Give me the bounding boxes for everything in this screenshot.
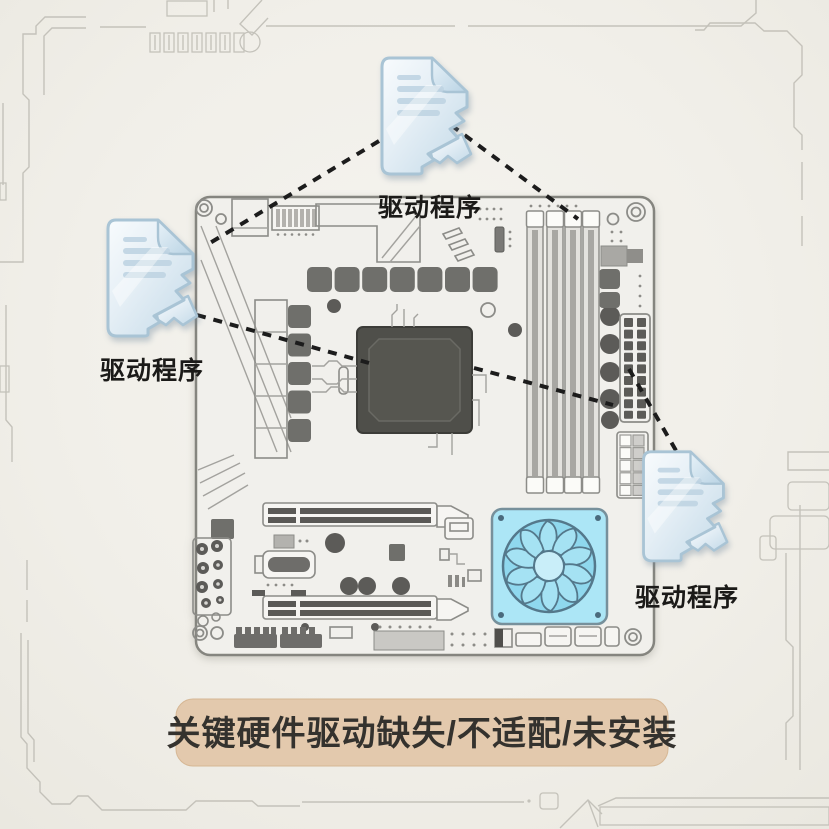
pcie-slot bbox=[263, 596, 468, 620]
diagram-svg: 驱动程序 驱动程序 驱动程序 关键硬件驱动缺失/不适配/未安装 bbox=[0, 0, 829, 829]
ram-slot bbox=[565, 211, 582, 493]
driver-label-left: 驱动程序 bbox=[100, 356, 204, 385]
ram-slot bbox=[547, 211, 564, 493]
atx-power-connector bbox=[620, 314, 650, 422]
driver-document-left bbox=[108, 220, 197, 336]
cpu bbox=[357, 327, 472, 433]
driver-label-right: 驱动程序 bbox=[635, 583, 739, 612]
driver-document-right bbox=[644, 452, 728, 561]
caption-text: 关键硬件驱动缺失/不适配/未安装 bbox=[167, 715, 678, 753]
pcie-slot bbox=[263, 503, 468, 527]
chipset-fan bbox=[492, 509, 607, 624]
motherboard-illustration bbox=[193, 197, 654, 655]
driver-label-top: 驱动程序 bbox=[378, 193, 482, 222]
ram-slot bbox=[527, 211, 544, 493]
ram-slots bbox=[527, 211, 600, 493]
ram-slot bbox=[583, 211, 600, 493]
caption-banner: 关键硬件驱动缺失/不适配/未安装 bbox=[167, 699, 678, 766]
infographic-canvas: 驱动程序 驱动程序 驱动程序 关键硬件驱动缺失/不适配/未安装 bbox=[0, 0, 829, 829]
driver-document-top bbox=[382, 58, 471, 174]
